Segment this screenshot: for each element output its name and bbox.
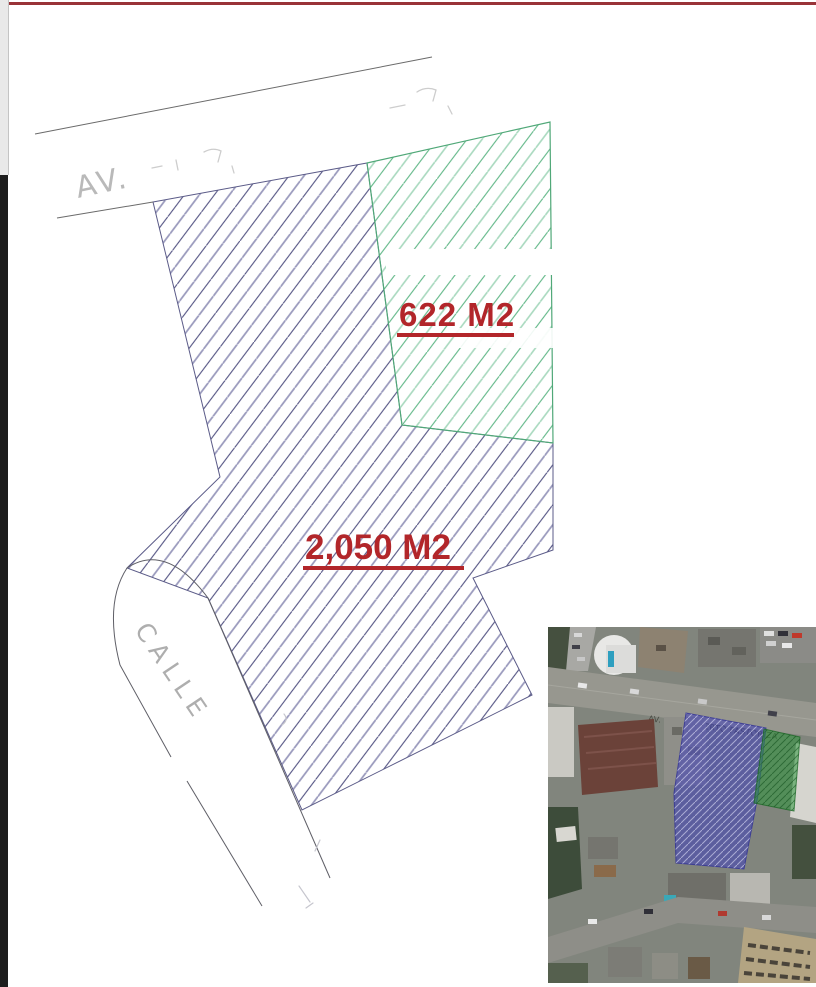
erased-band — [386, 249, 554, 275]
scanned-plan-page: AV. CALLE 622 M2 2,050 M2 — [0, 0, 816, 987]
calle-label: CALLE — [129, 617, 216, 727]
aerial-photo: AV. ING. ROBERTO PASTORIZA — [548, 627, 816, 983]
parcel-blue-area-label: 2,050 M2 — [305, 528, 451, 567]
avenue-label: AV. — [72, 160, 132, 205]
parcel-green-area-label: 622 M2 — [399, 296, 515, 333]
aerial-photo-inset: AV. ING. ROBERTO PASTORIZA — [548, 627, 816, 983]
